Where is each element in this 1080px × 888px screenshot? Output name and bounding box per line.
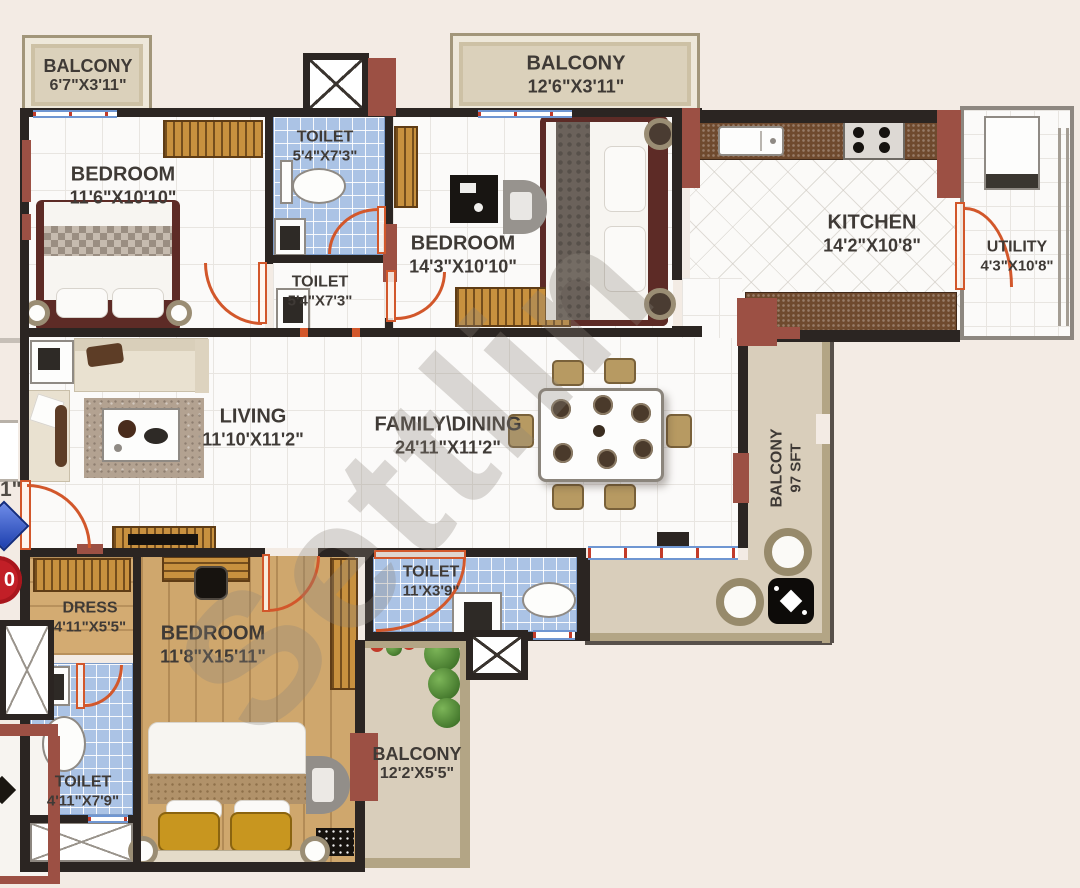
chair [503, 180, 547, 234]
chair-seat [312, 768, 334, 802]
wall [20, 548, 265, 557]
wall [960, 106, 1074, 110]
planter [716, 578, 764, 626]
wall [690, 110, 946, 123]
room-label-bedroom-3: BEDROOM11'8"X15'11" [160, 623, 266, 668]
red-column [682, 108, 700, 188]
bistro-table [768, 578, 814, 624]
planter [764, 528, 812, 576]
bedside-table [166, 300, 192, 326]
door-leaf [386, 270, 396, 322]
side-table-tray [38, 348, 60, 370]
plate [633, 439, 653, 459]
window [33, 110, 117, 118]
room-label-family-dining: FAMILY\DINING24'11"X11'2" [374, 414, 521, 459]
plate [597, 449, 617, 469]
wardrobe [33, 558, 131, 592]
bed [148, 722, 306, 774]
adjacent-wall [0, 724, 58, 736]
red-column [737, 298, 777, 346]
wall [960, 336, 1074, 340]
cup [114, 444, 122, 452]
wall [20, 336, 29, 482]
pillow [604, 146, 646, 212]
room-label-toilet-1: TOILET5'4"X7'3" [293, 129, 358, 166]
stove [843, 120, 905, 160]
adjacent-duct [0, 620, 54, 720]
plate [551, 399, 571, 419]
dining-chair [604, 484, 636, 510]
kitchen-sink [718, 126, 784, 156]
shaft-duct [30, 822, 133, 862]
elevator-shaft [466, 630, 528, 680]
room-label-balcony-top-center: BALCONY12'6"X3'11" [527, 53, 626, 98]
washing-machine [984, 116, 1040, 190]
pillow [158, 812, 220, 852]
toilet-wc [292, 168, 346, 204]
sofa-arm [195, 339, 209, 393]
dining-chair [604, 358, 636, 384]
unit-number-badge: 0 [0, 556, 22, 604]
side-table [30, 340, 74, 384]
room-label-bedroom-2: BEDROOM14'3"X10'10" [409, 233, 517, 278]
balcony-rail-gap [816, 414, 830, 444]
wall [265, 108, 273, 264]
wardrobe [330, 558, 358, 690]
dot [774, 586, 779, 591]
wall [580, 558, 590, 641]
toilet-wc [522, 582, 576, 618]
wash-basin [274, 218, 306, 256]
wall [20, 862, 365, 872]
bedside-table [644, 288, 676, 320]
sofa-arm [55, 405, 67, 467]
tv-screen [128, 534, 198, 545]
elevator-shaft [303, 53, 369, 115]
window [588, 546, 738, 560]
centerpiece [593, 425, 605, 437]
burner [853, 127, 864, 138]
door-leaf [377, 206, 386, 254]
window [478, 110, 572, 118]
dining-chair [552, 484, 584, 510]
wardrobe [163, 120, 263, 158]
door-leaf [955, 202, 965, 290]
bed-throw [44, 226, 172, 256]
adjacent-wall [0, 876, 58, 884]
dimension-fragment: 1" [0, 478, 22, 502]
room-label-dress: DRESS4'11"X5'5" [54, 600, 126, 637]
basin-bowl [280, 226, 300, 250]
balcony-border [363, 640, 468, 648]
pillow [230, 812, 292, 852]
sofa [74, 338, 208, 392]
red-column [937, 110, 961, 198]
pillow [604, 226, 646, 292]
utility-window [1058, 128, 1061, 326]
dining-chair [552, 360, 584, 386]
pillow [56, 288, 108, 318]
balcony-border [460, 648, 470, 862]
chair-seat [510, 192, 532, 220]
room-label-balcony-bottom: BALCONY12'2'X5'5" [373, 744, 462, 784]
dot [802, 610, 807, 615]
room-label-balcony-top-left: BALCONY6'7"X3'11" [44, 56, 133, 96]
red-column [772, 327, 800, 339]
room-label-toilet-2: TOILET5'4"X7'3" [288, 274, 353, 311]
plate [593, 395, 613, 415]
tv-dot [474, 203, 483, 212]
balcony-border-line [830, 330, 834, 643]
room-label-kitchen: KITCHEN14'2"X10'8" [823, 212, 921, 257]
red-column [733, 453, 749, 503]
basin-bowl [464, 602, 492, 632]
napkin [780, 590, 803, 613]
window [533, 630, 575, 640]
burner [853, 142, 864, 153]
wall [1070, 106, 1074, 340]
wardrobe [394, 126, 418, 208]
adjacent-wall-line [0, 338, 20, 343]
balcony-border-line [585, 641, 832, 645]
wall [672, 108, 682, 280]
bed-runner [556, 122, 590, 320]
door-leaf [76, 663, 85, 709]
dining-chair [666, 414, 692, 448]
door-frame-mark [300, 328, 308, 337]
bowl [118, 420, 136, 438]
red-column [22, 214, 31, 240]
sofa-pillow [86, 343, 124, 368]
balcony-border [363, 858, 470, 868]
tv-screen [460, 183, 476, 193]
wall [265, 255, 393, 263]
sink-divider [760, 131, 762, 151]
tray [144, 428, 168, 444]
burner [879, 127, 890, 138]
washer-panel [986, 174, 1038, 188]
room-label-balcony-right: BALCONY97 SFT [769, 428, 806, 507]
burner [879, 142, 890, 153]
plate [631, 403, 651, 423]
window [88, 815, 128, 823]
dining-table [538, 388, 664, 482]
pillow [112, 288, 164, 318]
wall [738, 336, 748, 548]
adjacent-wall-strip [0, 420, 18, 482]
desk-chair [194, 566, 228, 600]
coffee-table [102, 408, 180, 462]
plate [553, 443, 573, 463]
door-frame-mark [352, 328, 360, 337]
room-label-living: LIVING11'10'X11'2" [202, 406, 303, 451]
wall [133, 556, 141, 862]
plant [432, 698, 462, 728]
room-label-utility: UTILITY4'3"X10'8" [980, 239, 1053, 276]
plant [428, 668, 460, 700]
floor-plan: 1" 0 BALCONY6'7"X3'11" BALCONY12'6"X3'11… [0, 0, 1080, 888]
red-column [22, 140, 31, 202]
sofa [28, 390, 70, 482]
toilet-cistern [280, 160, 293, 204]
room-label-toilet-4: TOILET11'X3'9" [403, 564, 460, 601]
room-label-bedroom-1: BEDROOM11'6"X10'10" [70, 164, 177, 209]
wall [365, 556, 373, 632]
room-label-toilet-3: TOILET4'11"X7'9" [47, 774, 119, 811]
tv-unit [450, 175, 498, 223]
sink-drain [770, 138, 776, 144]
red-column [368, 58, 396, 116]
wall [672, 326, 702, 337]
utility-window [1066, 128, 1069, 326]
